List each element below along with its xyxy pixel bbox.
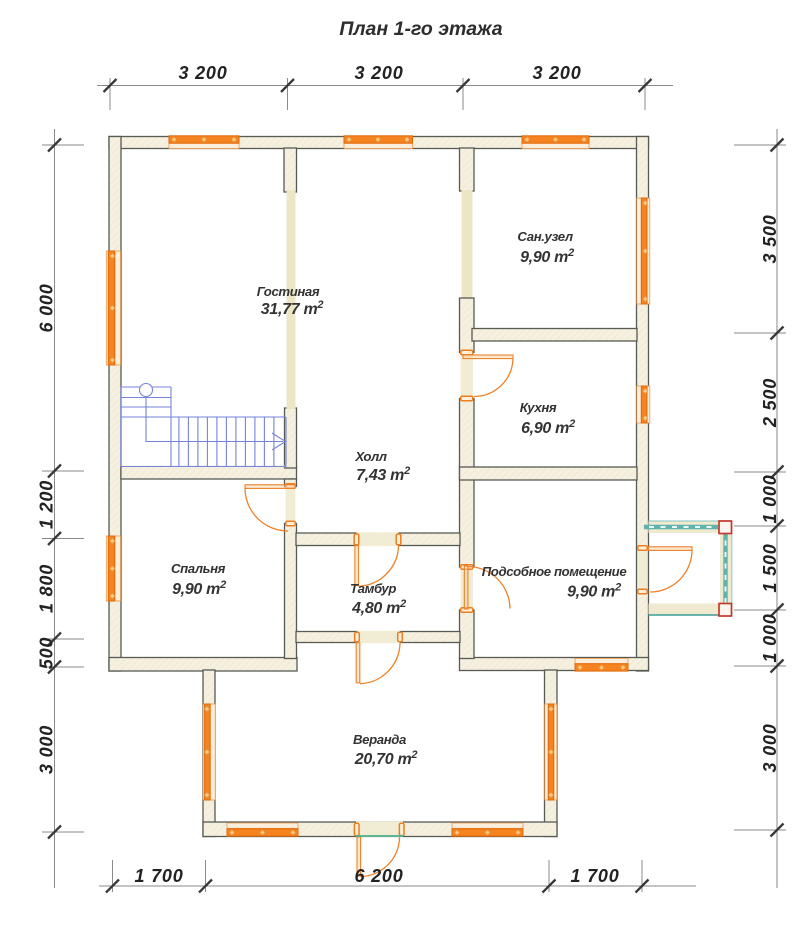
svg-text:9,90 m2: 9,90 m2 — [520, 247, 574, 266]
svg-text:6 000: 6 000 — [37, 283, 57, 332]
svg-text:Подсобное помещение: Подсобное помещение — [482, 564, 627, 579]
svg-text:3 200: 3 200 — [354, 63, 403, 83]
svg-text:9,90 m2: 9,90 m2 — [172, 579, 226, 598]
svg-text:6 200: 6 200 — [354, 866, 403, 886]
svg-text:20,70 m2: 20,70 m2 — [354, 749, 418, 768]
svg-text:3 000: 3 000 — [37, 725, 57, 774]
svg-text:3 000: 3 000 — [760, 723, 780, 772]
svg-text:Веранда: Веранда — [353, 732, 406, 747]
svg-text:3 200: 3 200 — [532, 63, 581, 83]
svg-text:1 000: 1 000 — [760, 613, 780, 662]
svg-text:Спальня: Спальня — [171, 561, 226, 576]
svg-text:Холл: Холл — [354, 449, 386, 464]
svg-text:3 500: 3 500 — [760, 214, 780, 263]
svg-text:1 700: 1 700 — [134, 866, 183, 886]
svg-text:Сан.узел: Сан.узел — [517, 229, 573, 244]
svg-text:1 800: 1 800 — [37, 564, 57, 613]
svg-text:4,80 m2: 4,80 m2 — [351, 598, 406, 617]
svg-text:2 500: 2 500 — [760, 378, 780, 428]
svg-text:7,43 m2: 7,43 m2 — [356, 465, 410, 484]
svg-text:9,90 m2: 9,90 m2 — [567, 582, 621, 601]
svg-text:1 700: 1 700 — [570, 866, 619, 886]
svg-text:Кухня: Кухня — [520, 400, 557, 415]
svg-text:500: 500 — [37, 637, 57, 669]
svg-text:6,90 m2: 6,90 m2 — [521, 418, 575, 437]
svg-text:1 500: 1 500 — [760, 543, 780, 592]
svg-text:Гостиная: Гостиная — [257, 284, 320, 299]
svg-text:Тамбур: Тамбур — [350, 581, 396, 596]
svg-text:31,77 m2: 31,77 m2 — [261, 299, 324, 318]
svg-text:1 200: 1 200 — [37, 480, 57, 529]
svg-text:3 200: 3 200 — [178, 63, 227, 83]
svg-text:1 000: 1 000 — [760, 474, 780, 523]
svg-text:План 1-го этажа: План 1-го этажа — [339, 18, 502, 40]
